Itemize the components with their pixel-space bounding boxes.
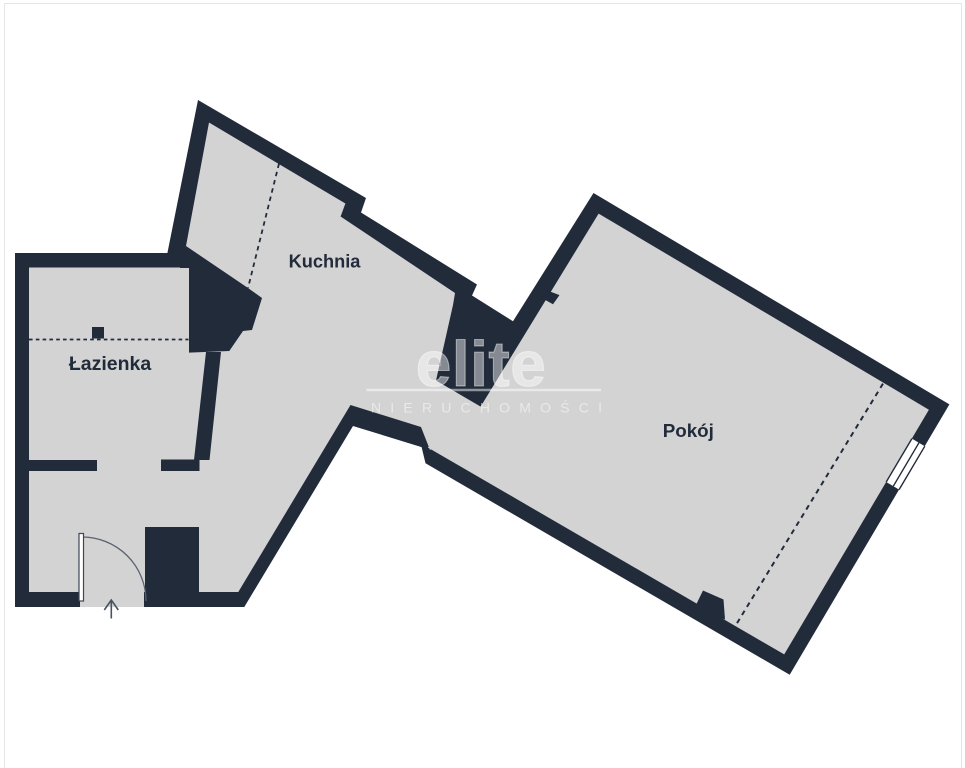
svg-text:Kuchnia: Kuchnia	[289, 252, 362, 272]
svg-text:Pokój: Pokój	[663, 420, 714, 441]
svg-text:Łazienka: Łazienka	[69, 353, 152, 375]
svg-text:NIERUCHOMOŚCI: NIERUCHOMOŚCI	[371, 398, 611, 415]
